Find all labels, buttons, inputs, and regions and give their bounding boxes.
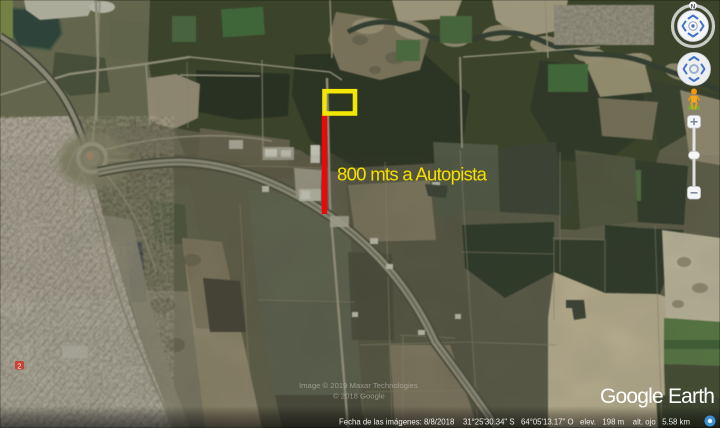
svg-text:Image © 2019 Maxar Technologie: Image © 2019 Maxar Technologies	[299, 381, 418, 390]
svg-text:Fecha de las imágenes: 8/8/201: Fecha de las imágenes: 8/8/2018 31°25'30…	[339, 418, 690, 427]
svg-text:800 mts a Autopista: 800 mts a Autopista	[337, 164, 488, 185]
svg-text:Google Earth: Google Earth	[600, 385, 714, 408]
svg-text:N: N	[691, 3, 696, 10]
svg-text:2: 2	[17, 361, 21, 370]
svg-text:© 2018 Google: © 2018 Google	[333, 392, 385, 401]
